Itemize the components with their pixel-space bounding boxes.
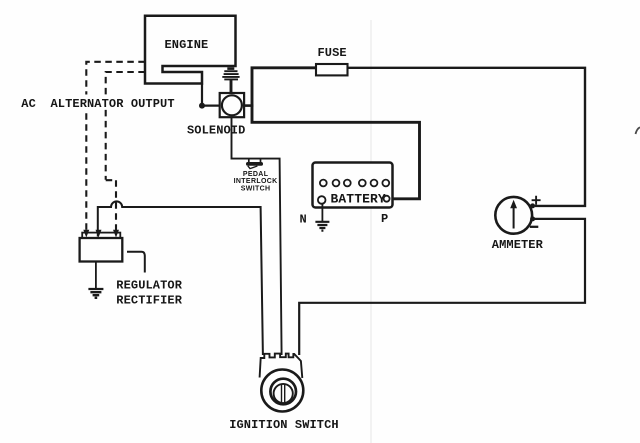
svg-text:AMMETER: AMMETER [492,238,544,252]
svg-text:INTERLOCK: INTERLOCK [234,178,278,185]
svg-text:ENGINE: ENGINE [165,38,209,52]
svg-text:IGNITION SWITCH: IGNITION SWITCH [229,418,339,432]
svg-text:N: N [300,213,307,227]
svg-text:BATTERY: BATTERY [331,191,386,206]
svg-text:PEDAL: PEDAL [243,171,269,178]
svg-text:P: P [381,212,388,226]
svg-text:AC ALTERNATOR OUTPUT: AC ALTERNATOR OUTPUT [21,97,174,111]
svg-text:SOLENOID: SOLENOID [187,124,245,138]
svg-text:FUSE: FUSE [318,46,347,60]
svg-text:REGULATOR: REGULATOR [116,278,182,292]
svg-text:SWITCH: SWITCH [241,185,271,192]
svg-text:RECTIFIER: RECTIFIER [116,294,182,308]
